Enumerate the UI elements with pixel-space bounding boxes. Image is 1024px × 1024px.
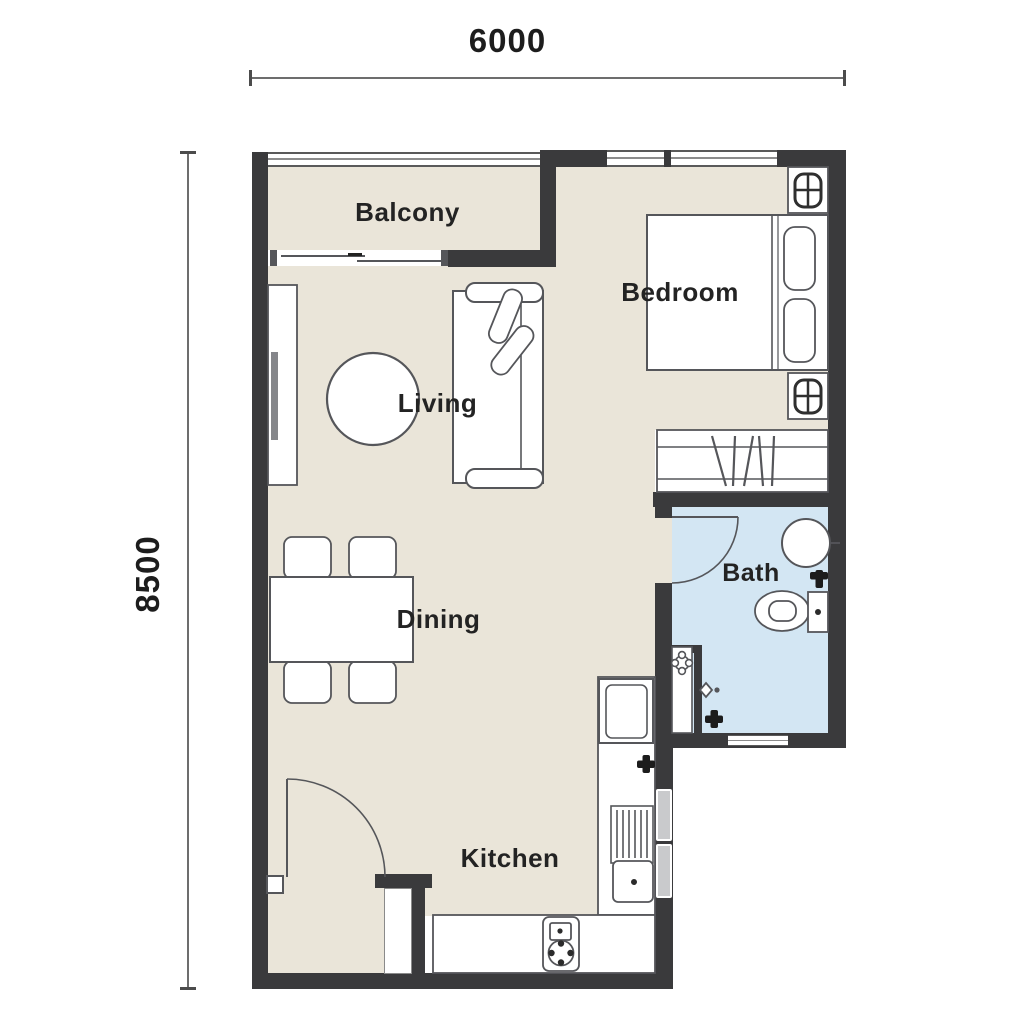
dimension-width-tick-right	[843, 70, 846, 86]
balcony-railing	[268, 152, 540, 167]
hanging-clothes-icon	[712, 436, 774, 486]
dimension-height-line	[187, 152, 189, 989]
living-dining-kitchen-floor	[268, 266, 655, 916]
bath-label: Bath	[690, 559, 812, 588]
kitchen-vent-lower	[656, 844, 672, 898]
bedroom-window-mullion	[664, 150, 671, 167]
entry-recess	[384, 888, 412, 974]
wall-shower-stub-v	[694, 651, 702, 733]
dimension-height-tick-bottom	[180, 987, 196, 990]
dimension-width-tick-left	[249, 70, 252, 86]
wall-entry-recess-right	[412, 888, 425, 974]
wardrobe-icon	[657, 430, 828, 492]
bedroom-window	[607, 150, 777, 167]
bedroom-window-midline	[607, 157, 777, 159]
cooktop-icon	[543, 917, 579, 971]
dimension-width-label: 6000	[440, 22, 575, 60]
dining-label: Dining	[361, 604, 516, 635]
wall-entry-stub	[375, 874, 432, 888]
dimension-width-line	[250, 77, 845, 79]
wall-below-wardrobe	[653, 492, 846, 507]
wall-bath-left-upper	[655, 507, 672, 518]
kitchen-vent-upper	[656, 789, 672, 841]
wall-right	[828, 150, 846, 748]
balcony-label: Balcony	[330, 197, 485, 228]
wall-balcony-divider	[448, 250, 556, 267]
sliding-door-cap-left	[270, 250, 277, 266]
floor-plan: 6000 8500	[0, 0, 1024, 1024]
bedroom-label: Bedroom	[600, 277, 760, 308]
bath-doorway-floor	[655, 517, 672, 583]
sliding-door-panel-right	[357, 260, 441, 262]
dimension-height-label: 8500	[129, 514, 167, 634]
wall-top-a	[540, 150, 607, 167]
wall-bath-left-lower	[655, 583, 672, 748]
bath-window-midline	[728, 740, 788, 741]
sliding-door-cap-right	[441, 250, 448, 266]
sliding-door-overlap	[348, 253, 362, 256]
wall-left	[252, 152, 268, 989]
dimension-height-tick-top	[180, 151, 196, 154]
entry-floor	[268, 874, 384, 974]
living-label: Living	[360, 388, 515, 419]
entry-door-jamb	[266, 875, 284, 894]
kitchen-label: Kitchen	[430, 843, 590, 874]
balcony-railing-midline	[268, 158, 540, 160]
wall-bottom	[252, 973, 673, 989]
